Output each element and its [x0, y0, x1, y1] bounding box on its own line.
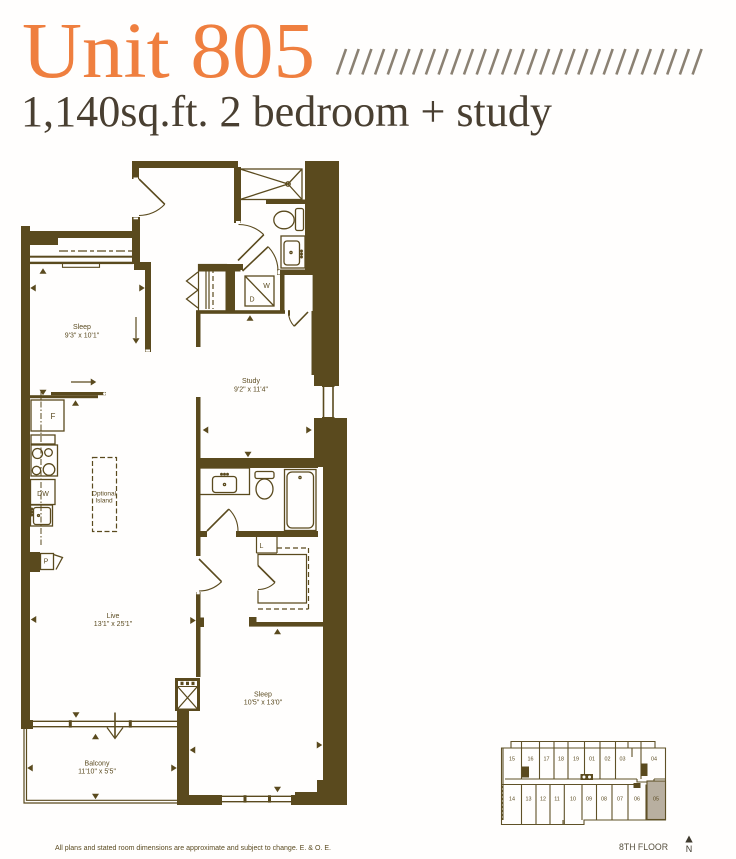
svg-text:1,140sq.ft. 2 bedroom + study: 1,140sq.ft. 2 bedroom + study	[21, 87, 552, 136]
svg-text:01: 01	[589, 757, 595, 763]
svg-text:F: F	[51, 412, 56, 421]
svg-text:Study: Study	[242, 378, 260, 385]
svg-text:Island: Island	[95, 498, 113, 505]
svg-text:Optional: Optional	[92, 491, 117, 498]
svg-text:DW: DW	[37, 491, 49, 498]
svg-text:Unit 805: Unit 805	[22, 8, 315, 95]
svg-text:14: 14	[509, 797, 515, 803]
svg-text:02: 02	[605, 757, 611, 763]
svg-text:Live: Live	[107, 613, 120, 620]
svg-text:13'1" x 25'1": 13'1" x 25'1"	[94, 621, 133, 628]
svg-text:19: 19	[573, 757, 579, 763]
svg-text:15: 15	[509, 757, 515, 763]
svg-text:P: P	[44, 559, 49, 566]
svg-text:11'10" x 5'5": 11'10" x 5'5"	[78, 769, 116, 776]
svg-text:12: 12	[540, 797, 546, 803]
svg-text:Sleep: Sleep	[73, 324, 91, 331]
svg-text:06: 06	[634, 797, 640, 803]
svg-text:D: D	[249, 297, 254, 304]
svg-text:08: 08	[601, 797, 607, 803]
svg-text:Sleep: Sleep	[254, 692, 272, 699]
svg-text:03: 03	[620, 757, 626, 763]
svg-text:17: 17	[544, 757, 550, 763]
svg-text:9'2" x 11'4": 9'2" x 11'4"	[234, 387, 268, 394]
svg-text:W: W	[263, 283, 270, 290]
svg-text:10: 10	[570, 797, 576, 803]
svg-text:L: L	[260, 543, 264, 550]
svg-text:16: 16	[528, 757, 534, 763]
svg-text:9'3" x 10'1": 9'3" x 10'1"	[65, 333, 100, 340]
svg-text:Balcony: Balcony	[85, 761, 110, 768]
svg-text:11: 11	[554, 797, 560, 803]
svg-text:N: N	[686, 844, 693, 854]
svg-text:10'5" x 13'0": 10'5" x 13'0"	[244, 700, 283, 707]
svg-text:09: 09	[586, 797, 592, 803]
svg-text:All plans and stated room dime: All plans and stated room dimensions are…	[55, 843, 331, 852]
svg-text:18: 18	[558, 757, 564, 763]
svg-text:05: 05	[653, 797, 659, 803]
svg-text:07: 07	[617, 797, 623, 803]
svg-text:04: 04	[651, 757, 657, 763]
svg-text:13: 13	[526, 797, 532, 803]
svg-text:8TH FLOOR: 8TH FLOOR	[619, 842, 668, 853]
